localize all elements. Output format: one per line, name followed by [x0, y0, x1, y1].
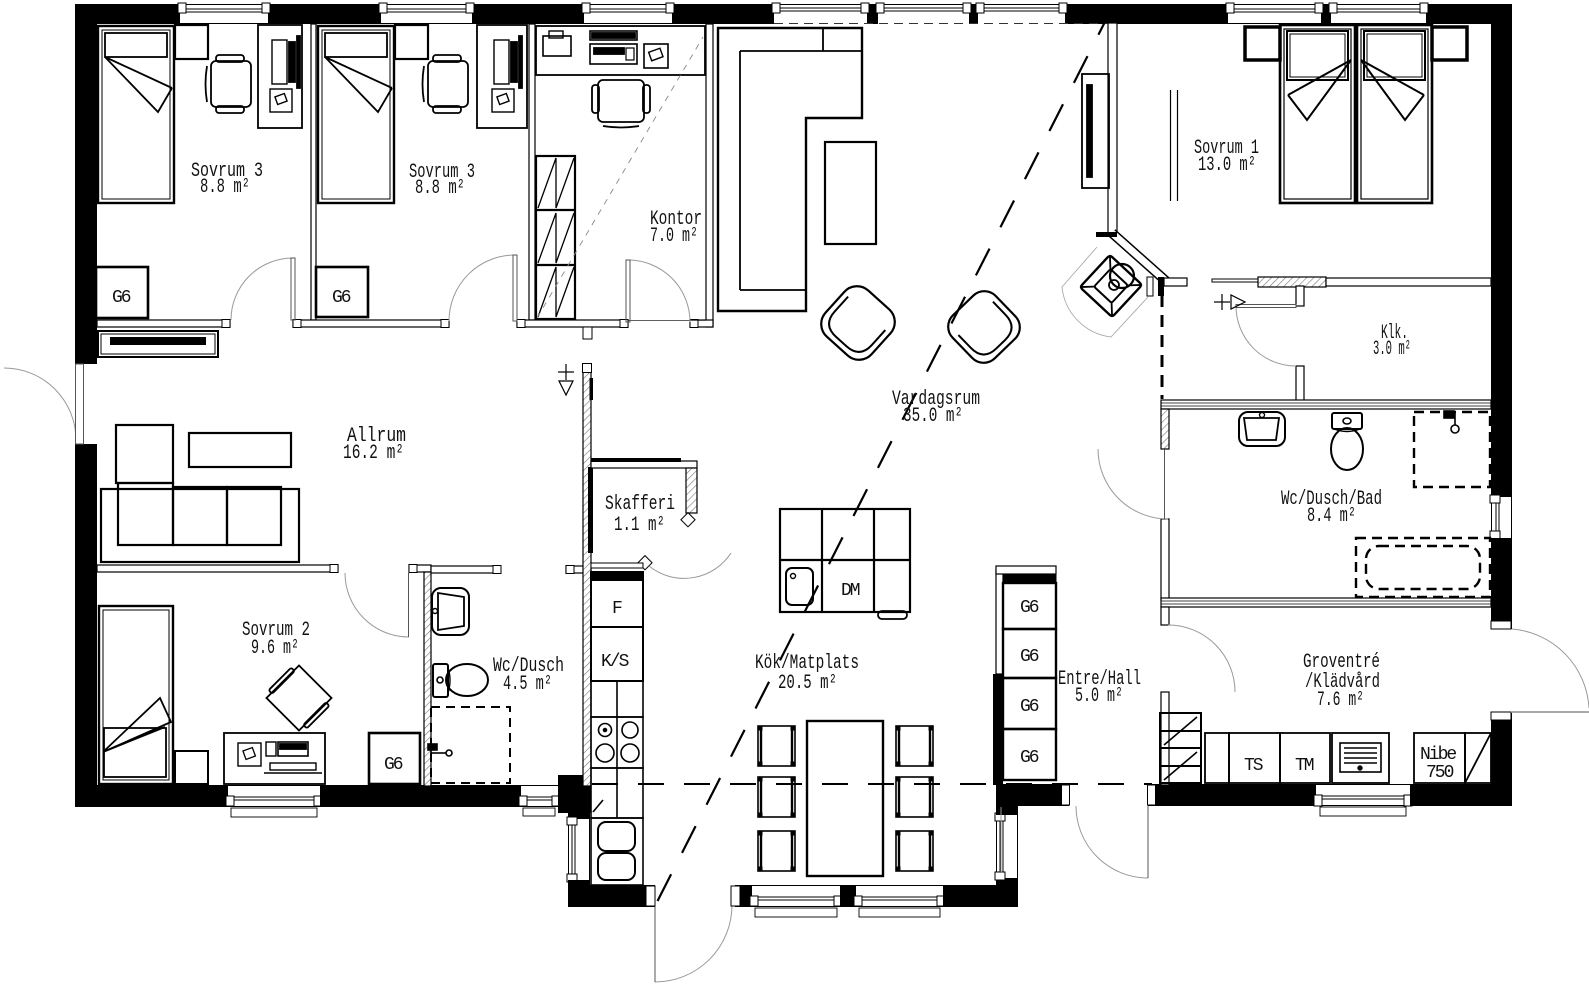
svg-text:G6: G6 — [1020, 598, 1039, 618]
svg-text:5.0 m²: 5.0 m² — [1075, 685, 1123, 708]
svg-text:DM: DM — [841, 581, 860, 601]
svg-text:35.0 m²: 35.0 m² — [903, 405, 963, 428]
svg-text:8.4 m²: 8.4 m² — [1307, 505, 1356, 528]
svg-text:9.6 m²: 9.6 m² — [251, 637, 299, 660]
svg-text:7.0 m²: 7.0 m² — [650, 225, 698, 248]
svg-text:3.0 m²: 3.0 m² — [1373, 338, 1411, 361]
svg-text:Nibe: Nibe — [1420, 745, 1456, 765]
svg-text:750: 750 — [1426, 763, 1454, 783]
svg-text:F: F — [612, 599, 622, 619]
svg-text:G6: G6 — [1020, 647, 1039, 667]
svg-text:TS: TS — [1244, 756, 1263, 776]
svg-text:K/S: K/S — [601, 652, 629, 672]
svg-text:7.6 m²: 7.6 m² — [1317, 689, 1364, 712]
svg-text:G6: G6 — [112, 288, 131, 308]
svg-text:G6: G6 — [384, 755, 403, 775]
svg-text:G6: G6 — [1020, 748, 1039, 768]
svg-text:TM: TM — [1295, 756, 1314, 776]
svg-text:20.5 m²: 20.5 m² — [778, 672, 837, 695]
svg-text:8.8 m²: 8.8 m² — [415, 177, 465, 200]
svg-text:G6: G6 — [1020, 697, 1039, 717]
svg-text:1.1 m²: 1.1 m² — [614, 514, 665, 537]
svg-text:G6: G6 — [332, 288, 351, 308]
svg-text:8.8 m²: 8.8 m² — [200, 176, 250, 199]
svg-text:13.0 m²: 13.0 m² — [1198, 154, 1256, 177]
svg-text:16.2 m²: 16.2 m² — [343, 442, 404, 465]
svg-text:4.5 m²: 4.5 m² — [503, 673, 552, 696]
svg-text:Skafferi: Skafferi — [605, 493, 675, 516]
